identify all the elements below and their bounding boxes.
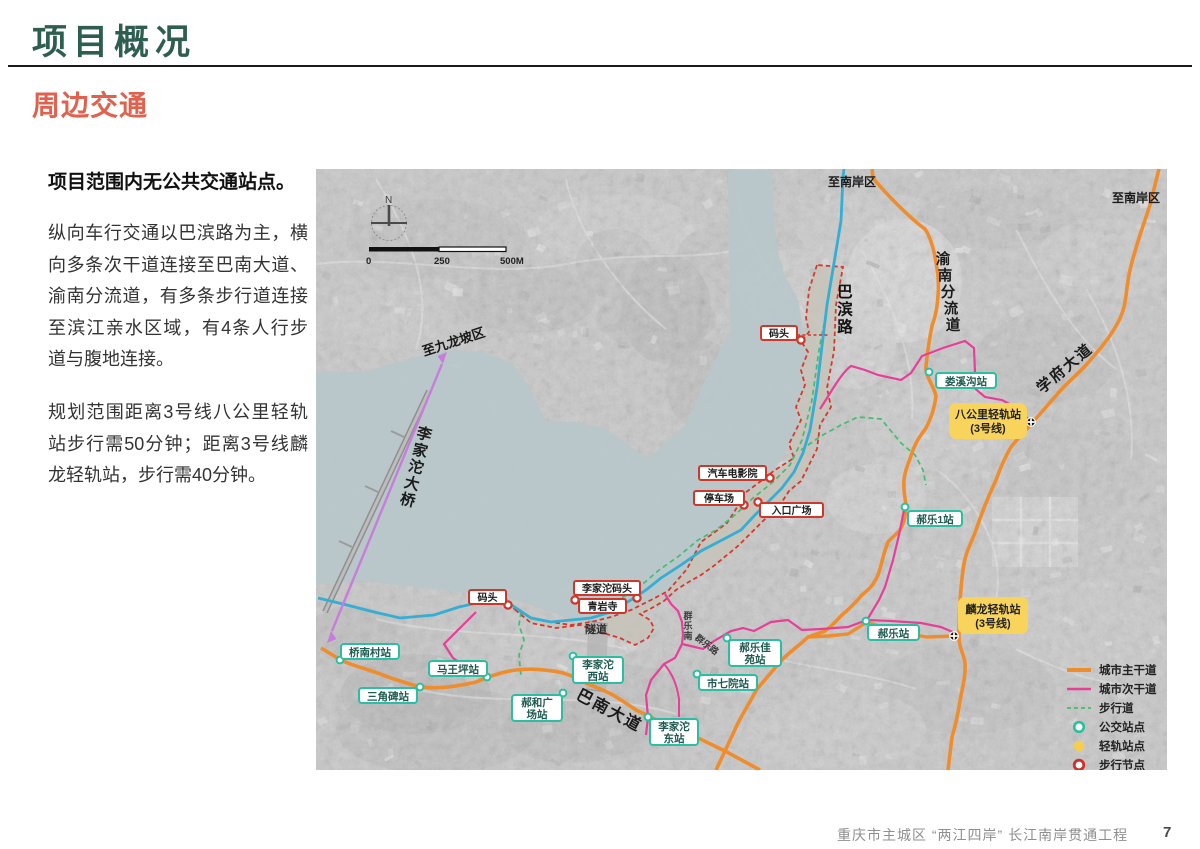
svg-text:郝乐1站: 郝乐1站 [916, 513, 954, 526]
svg-text:郝和广: 郝和广 [521, 696, 553, 709]
svg-text:轻轨站点: 轻轨站点 [1099, 739, 1145, 753]
svg-text:公交站点: 公交站点 [1099, 720, 1145, 734]
svg-text:娄溪沟站: 娄溪沟站 [945, 375, 987, 388]
svg-text:群乐南: 群乐南 [682, 610, 692, 641]
svg-text:码头: 码头 [769, 327, 789, 340]
svg-text:停车场: 停车场 [704, 492, 734, 505]
svg-text:汽车电影院: 汽车电影院 [708, 467, 758, 480]
svg-text:场站: 场站 [527, 708, 548, 721]
svg-text:李家沱码头: 李家沱码头 [581, 582, 632, 595]
svg-text:李家沱: 李家沱 [581, 658, 614, 671]
svg-text:步行道: 步行道 [1099, 701, 1134, 715]
svg-text:码头: 码头 [478, 591, 498, 604]
svg-text:李家沱: 李家沱 [657, 720, 690, 733]
svg-text:步行节点: 步行节点 [1099, 758, 1145, 770]
svg-text:至南岸区: 至南岸区 [828, 174, 876, 189]
svg-text:城市次干道: 城市次干道 [1099, 682, 1157, 696]
svg-text:郝乐站: 郝乐站 [878, 627, 910, 640]
svg-text:(3号线): (3号线) [975, 616, 1011, 630]
svg-text:0: 0 [366, 256, 371, 267]
svg-text:苑站: 苑站 [744, 653, 766, 666]
svg-text:郝乐佳: 郝乐佳 [739, 641, 771, 654]
svg-text:桥南村站: 桥南村站 [349, 646, 391, 659]
svg-text:市七院站: 市七院站 [707, 677, 749, 690]
svg-text:东站: 东站 [664, 732, 685, 745]
svg-text:八公里轻轨站: 八公里轻轨站 [954, 407, 1021, 421]
svg-text:城市主干道: 城市主干道 [1099, 663, 1157, 677]
svg-text:西站: 西站 [588, 670, 609, 683]
svg-text:麟龙轻轨站: 麟龙轻轨站 [966, 602, 1021, 616]
svg-text:(3号线): (3号线) [970, 421, 1006, 435]
svg-text:至南岸区: 至南岸区 [1112, 190, 1160, 205]
svg-text:马王坪站: 马王坪站 [437, 663, 479, 676]
svg-text:250: 250 [434, 256, 450, 267]
svg-text:三角碑站: 三角碑站 [367, 690, 409, 703]
svg-text:N: N [385, 195, 392, 206]
svg-text:青岩寺: 青岩寺 [588, 600, 618, 613]
svg-text:巴滨路: 巴滨路 [837, 283, 853, 336]
svg-text:500M: 500M [500, 256, 524, 267]
svg-text:入口广场: 入口广场 [772, 504, 812, 517]
svg-text:隧道: 隧道 [585, 622, 607, 636]
